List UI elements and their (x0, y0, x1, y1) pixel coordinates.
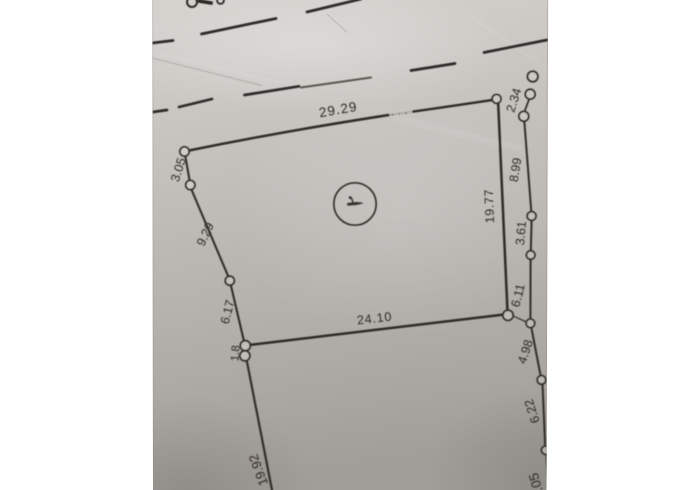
svg-text:1.8: 1.8 (229, 345, 242, 362)
svg-text:3.61: 3.61 (513, 220, 529, 246)
svg-text:19.77: 19.77 (482, 189, 497, 224)
